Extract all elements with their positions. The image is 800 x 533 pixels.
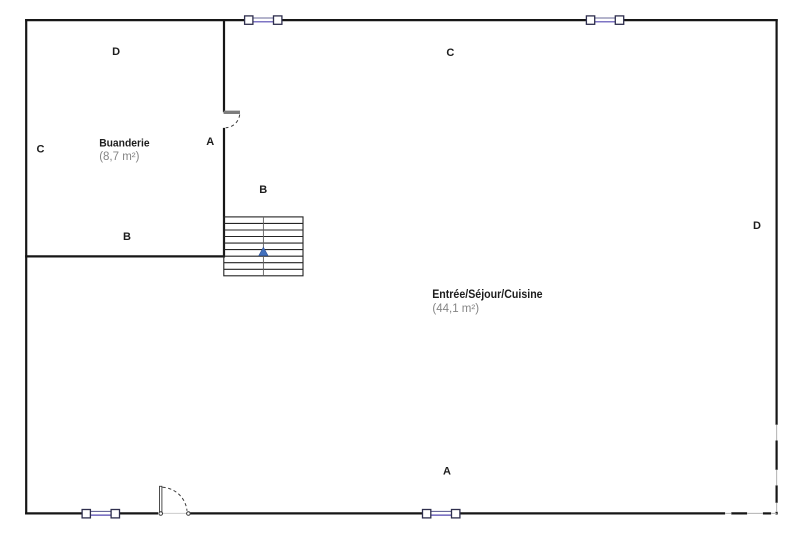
svg-text:B: B [259, 184, 267, 196]
svg-text:D: D [112, 46, 120, 58]
svg-text:(44,1 m²): (44,1 m²) [432, 303, 479, 315]
svg-text:Buanderie: Buanderie [99, 137, 149, 149]
svg-text:Entrée/Séjour/Cuisine: Entrée/Séjour/Cuisine [432, 287, 543, 301]
svg-text:C: C [446, 47, 454, 59]
svg-text:(8,7 m²): (8,7 m²) [99, 151, 139, 163]
svg-text:A: A [206, 136, 214, 148]
svg-text:C: C [37, 144, 45, 156]
svg-text:D: D [753, 220, 761, 232]
svg-text:B: B [123, 231, 131, 243]
svg-text:A: A [443, 466, 451, 478]
